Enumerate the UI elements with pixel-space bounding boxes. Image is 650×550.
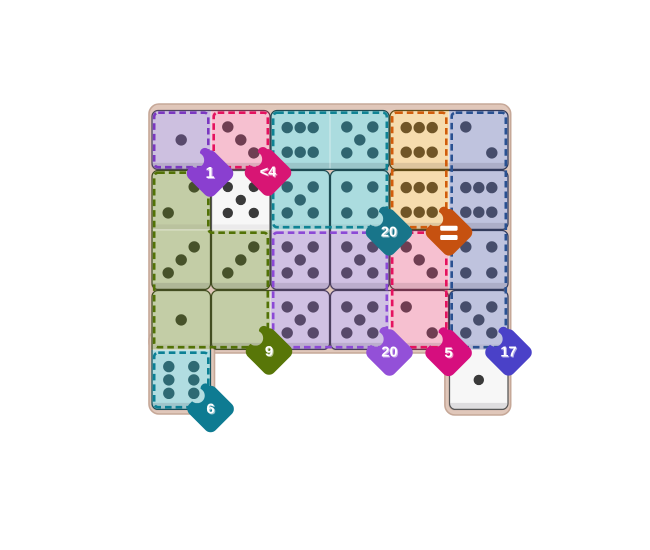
svg-text:5: 5 — [444, 344, 452, 361]
svg-text:17: 17 — [500, 344, 516, 360]
svg-text:<4: <4 — [260, 165, 277, 181]
svg-text:20: 20 — [381, 345, 397, 361]
svg-text:1: 1 — [206, 165, 215, 182]
svg-text:9: 9 — [265, 343, 273, 360]
svg-text:20: 20 — [381, 224, 397, 240]
svg-text:6: 6 — [206, 401, 214, 418]
